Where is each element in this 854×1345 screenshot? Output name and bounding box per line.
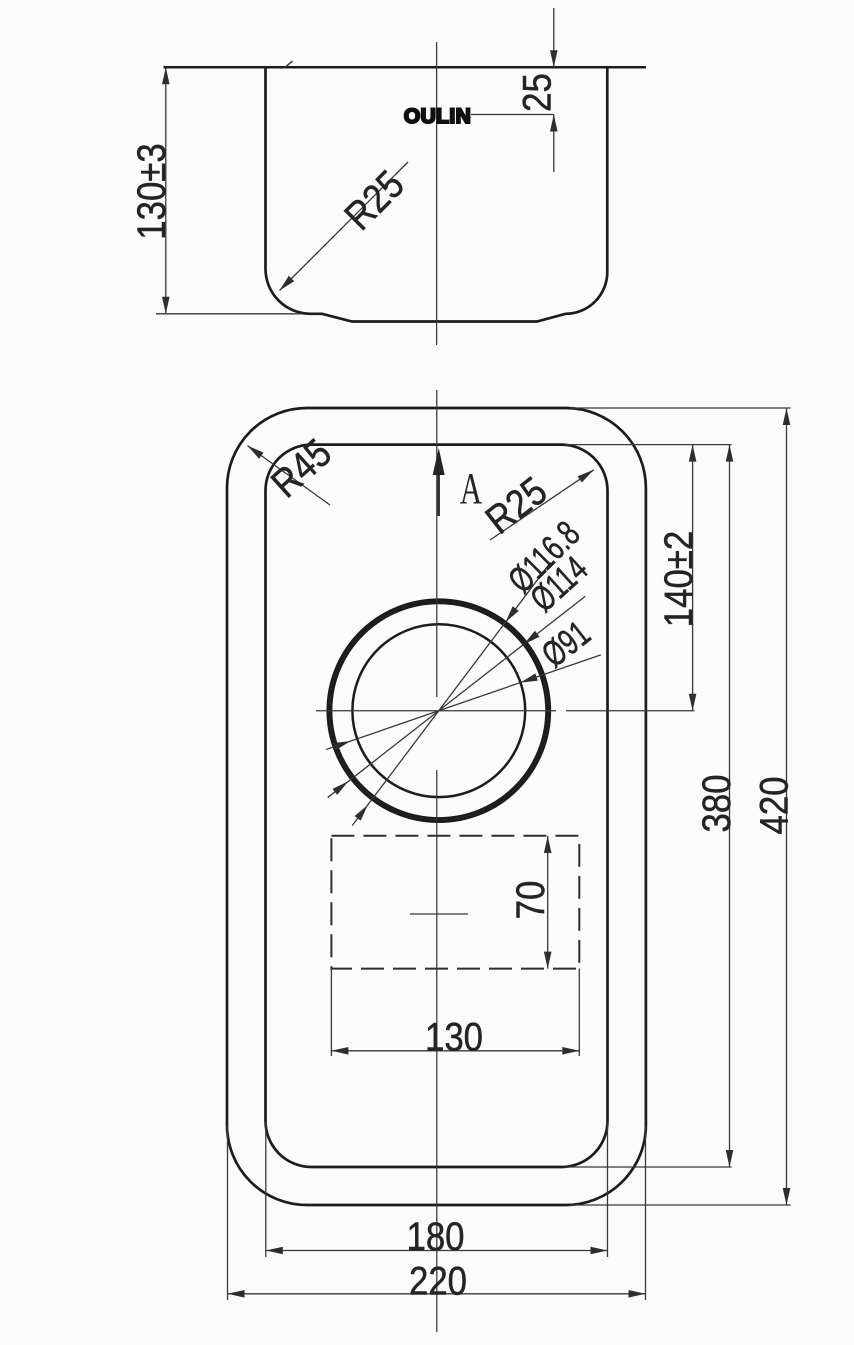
svg-text:180: 180 xyxy=(406,1214,464,1259)
svg-text:25: 25 xyxy=(514,73,559,112)
svg-text:140±2: 140±2 xyxy=(656,531,701,628)
svg-text:130: 130 xyxy=(425,1014,483,1059)
svg-text:420: 420 xyxy=(751,776,796,834)
svg-text:380: 380 xyxy=(694,774,739,832)
svg-text:OULIN: OULIN xyxy=(404,105,471,128)
svg-text:220: 220 xyxy=(409,1258,467,1303)
svg-text:A: A xyxy=(460,465,483,514)
svg-text:130±3: 130±3 xyxy=(129,143,174,240)
svg-text:70: 70 xyxy=(508,881,553,920)
